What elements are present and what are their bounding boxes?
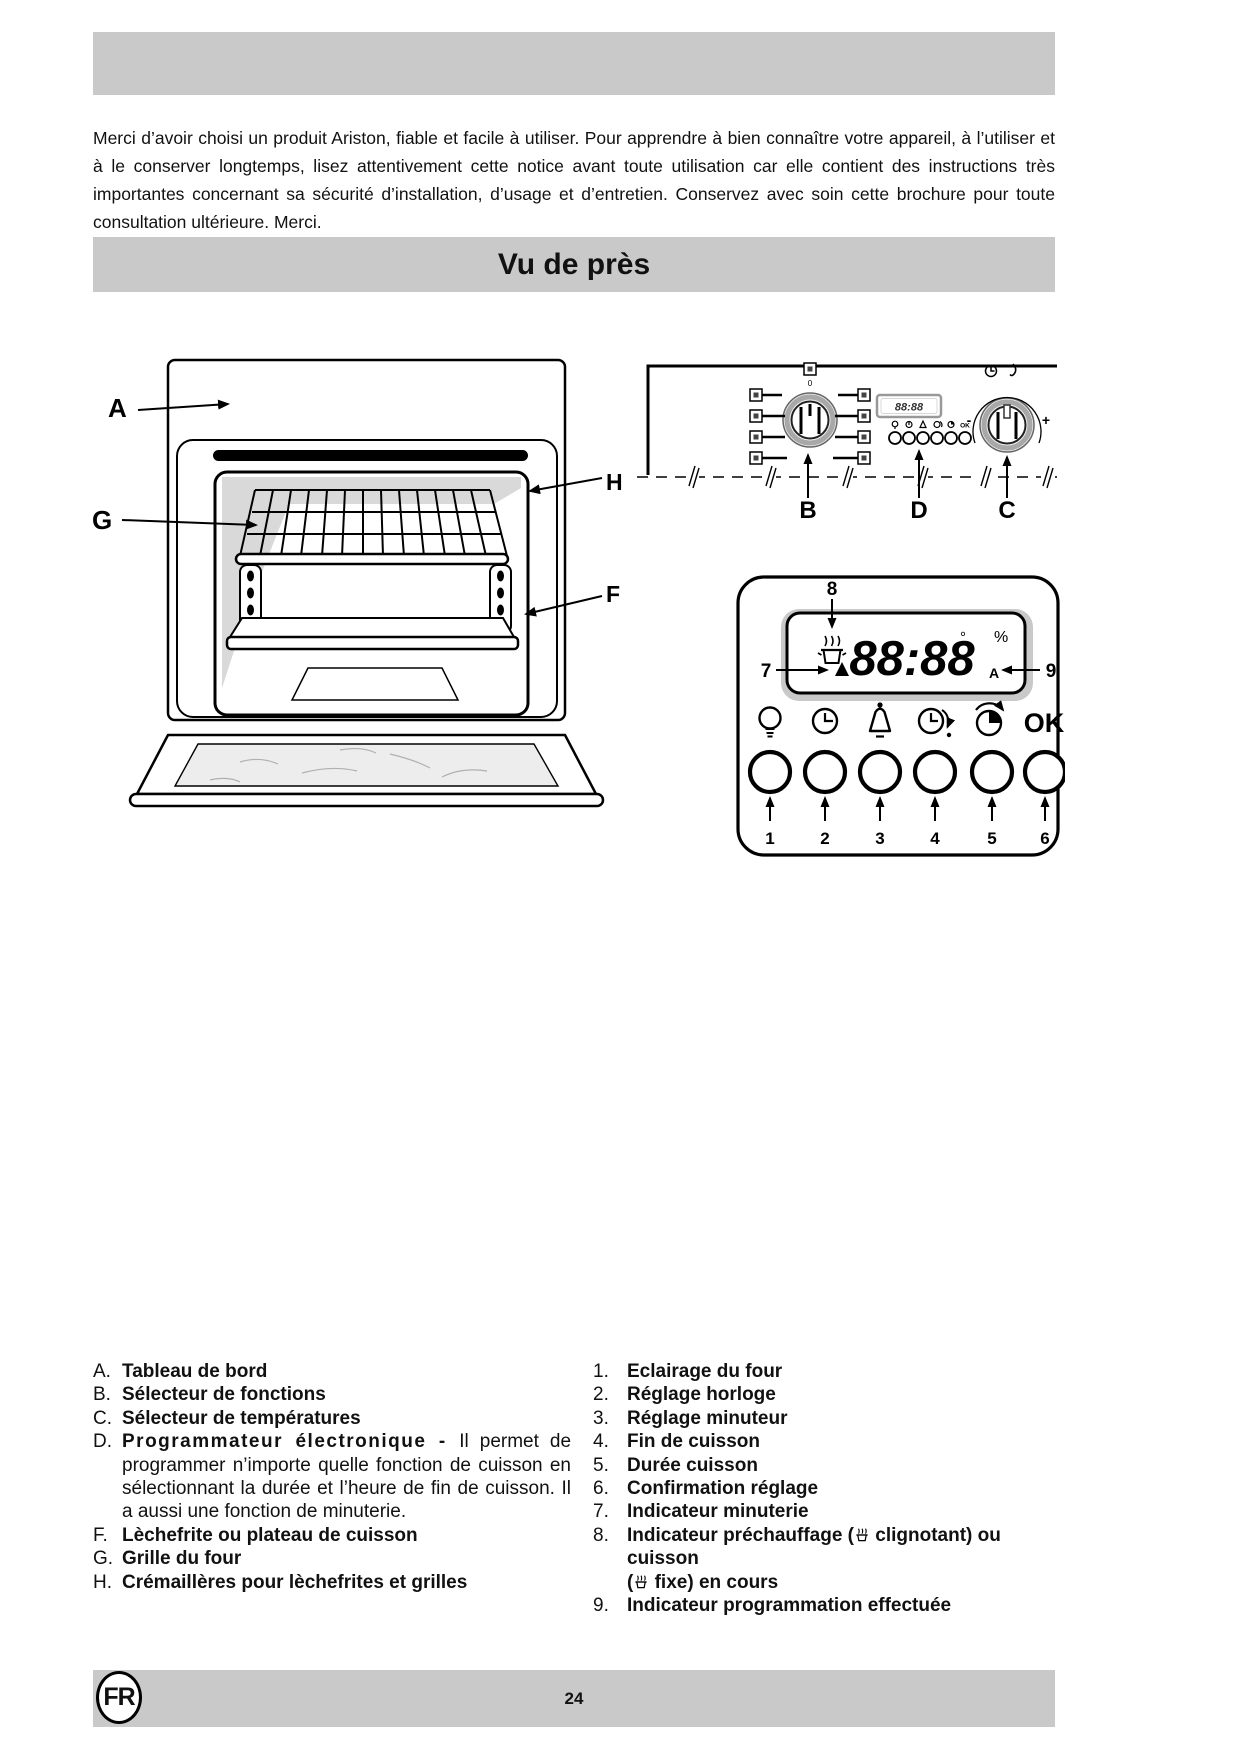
legend-item-8: 8. Indicateur préchauffage ( clignotant)… — [593, 1524, 1058, 1594]
legend-item-3: 3. Réglage minuteur — [593, 1407, 1058, 1430]
legend-item-b: B. Sélecteur de fonctions — [93, 1383, 571, 1406]
oven-door-open — [130, 735, 603, 806]
knob-zero-mark: 0 — [808, 379, 813, 388]
section-title: Vu de près — [498, 248, 650, 282]
top-gray-bar — [93, 32, 1055, 95]
percent-indicator: % — [994, 629, 1008, 646]
svg-text:6: 6 — [1040, 829, 1049, 848]
callout-8-label: 8 — [827, 579, 838, 600]
callout-9-label: 9 — [1046, 661, 1057, 682]
ok-button-label: OK — [1024, 708, 1065, 738]
oven-diagram: A G H F — [90, 350, 635, 810]
thermostat-knob — [973, 398, 1041, 452]
page-number: 24 — [93, 1689, 1055, 1709]
callout-7-label: 7 — [761, 661, 772, 682]
legend-item-6: 6. Confirmation réglage — [593, 1477, 1058, 1500]
legend-item-5: 5. Durée cuisson — [593, 1454, 1058, 1477]
legend-item-4: 4. Fin de cuisson — [593, 1430, 1058, 1453]
legend-item-c: C. Sélecteur de températures — [93, 1407, 571, 1430]
mini-button-icons — [892, 421, 954, 429]
callout-b-label: B — [799, 497, 816, 520]
drip-pan — [227, 618, 518, 649]
panel-break-line — [637, 465, 1057, 489]
callout-d-label: D — [910, 497, 927, 520]
vent-strip — [213, 450, 528, 461]
legend-item-9: 9. Indicateur programmation effectuée — [593, 1594, 1058, 1617]
rack-front-rail — [236, 554, 508, 564]
intro-paragraph: Merci d’avoir choisi un produit Ariston,… — [93, 124, 1055, 236]
thermostat-minus: - — [967, 412, 972, 428]
svg-text:3: 3 — [875, 829, 884, 848]
section-title-band: Vu de près — [93, 237, 1055, 292]
callout-f-label: F — [606, 581, 620, 607]
degree-indicator: ° — [960, 629, 966, 646]
svg-text:2: 2 — [820, 829, 829, 848]
svg-text:4: 4 — [930, 829, 940, 848]
mini-programmer: 88:88 OK — [877, 395, 971, 444]
legend-item-d: D. Programmateur électronique - Il perme… — [93, 1430, 571, 1524]
legend-item-f: F. Lèchefrite ou plateau de cuisson — [93, 1524, 571, 1547]
control-panel-diagram: 0 88:88 OK - + — [635, 355, 1060, 520]
preheat-inline-icon — [854, 1528, 870, 1542]
callout-a-label: A — [108, 393, 127, 423]
display-digits: 88:88 — [849, 632, 975, 686]
thermostat-plus: + — [1042, 412, 1050, 428]
programmer-diagram: 88:88 ° % A 8 7 9 OK — [680, 565, 1065, 870]
legend-item-a: A. Tableau de bord — [93, 1360, 571, 1383]
callout-h-label: H — [606, 469, 623, 495]
svg-text:5: 5 — [987, 829, 996, 848]
legend-item-1: 1. Eclairage du four — [593, 1360, 1058, 1383]
legend-item-7: 7. Indicateur minuterie — [593, 1500, 1058, 1523]
legend-item-h: H. Crémaillères pour lèchefrites et gril… — [93, 1571, 571, 1594]
auto-indicator: A — [989, 665, 999, 681]
mini-buttons — [889, 432, 971, 444]
cooking-inline-icon — [633, 1575, 649, 1589]
callout-g-label: G — [92, 505, 112, 535]
legend-item-2: 2. Réglage horloge — [593, 1383, 1058, 1406]
manual-page: { "page": { "intro": "Merci d’avoir choi… — [0, 0, 1240, 1755]
svg-text:1: 1 — [765, 829, 774, 848]
legend-letters: A. Tableau de bord B. Sélecteur de fonct… — [93, 1360, 571, 1594]
legend-item-g: G. Grille du four — [93, 1547, 571, 1570]
mini-display-value: 88:88 — [895, 402, 924, 414]
legend-numbers: 1. Eclairage du four 2. Réglage horloge … — [593, 1360, 1058, 1617]
function-knob — [783, 393, 837, 447]
callout-c-label: C — [998, 497, 1015, 520]
